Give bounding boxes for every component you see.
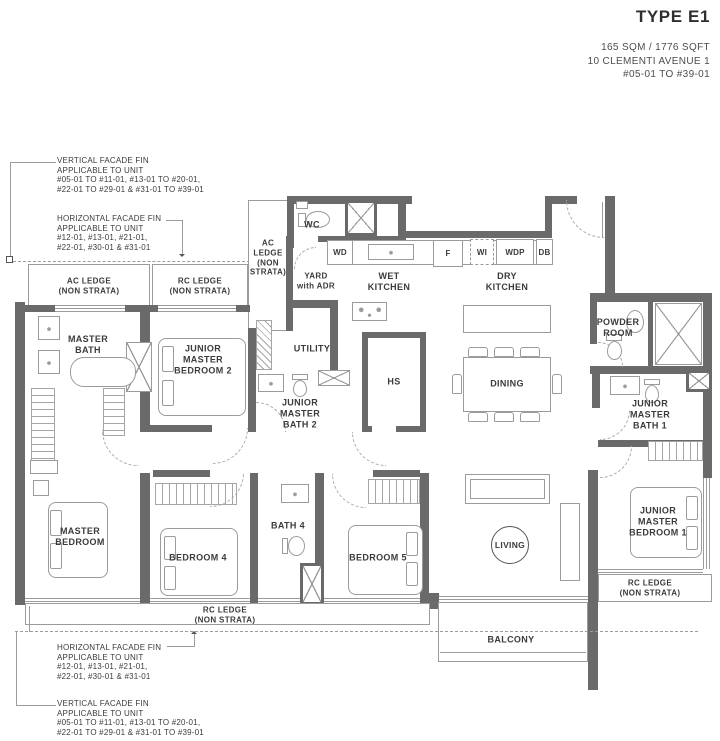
leader-line [182,220,183,254]
nightstand-icon [33,480,49,496]
vent-icon [318,370,350,386]
washer-dryer-box: WD [327,240,353,265]
toilet-icon [288,536,305,556]
label-junior-master-bath-2: JUNIOR MASTER BATH 2 [280,398,320,431]
callout-horizontal-fin-top: HORIZONTAL FACADE FIN APPLICABLE TO UNIT… [57,214,161,252]
bathtub-icon [70,357,136,387]
entry-door-arc [566,200,604,238]
label-bedroom-5: BEDROOM 5 [349,553,407,564]
pillow-icon [164,566,176,590]
label-master-bath: MASTER BATH [68,334,108,356]
wall [403,231,550,238]
wall [605,196,615,302]
label-junior-master-bedroom-1: JUNIOR MASTER BEDROOM 1 [629,506,687,539]
door-arc [600,410,630,440]
leader-line [194,634,195,647]
louvre-door-icon [256,320,272,370]
label-rc-ledge-right: RC LEDGE (NON STRATA) [620,578,681,598]
chair-icon [468,347,488,357]
sink-icon [281,484,309,503]
wdp-box: WDP [496,239,534,265]
wall [590,293,712,302]
chair-icon [452,374,462,394]
pillow-icon [686,496,698,520]
wardrobe-icon [103,388,125,436]
fridge-box: F [433,240,463,267]
window [158,305,236,312]
pillow-icon [406,532,418,556]
sink-icon [258,374,284,392]
toilet-icon [607,341,622,360]
label-ac-ledge-left: AC LEDGE (NON STRATA) [59,276,120,296]
sink-icon [610,376,640,395]
label-rc-ledge-left: RC LEDGE (NON STRATA) [170,276,231,296]
label-dry-kitchen: DRY KITCHEN [486,271,528,293]
balcony [438,602,588,662]
chair-icon [520,347,540,357]
label-yard: YARD with ADR [297,271,335,291]
label-bath-4: BATH 4 [271,521,305,532]
shaft [300,563,324,605]
callout-horizontal-fin-bottom: HORIZONTAL FACADE FIN APPLICABLE TO UNIT… [57,643,161,681]
label-bedroom-4: BEDROOM 4 [169,553,227,564]
wardrobe-icon [368,479,420,504]
label-dining: DINING [490,379,524,390]
sink-icon [38,350,60,374]
label-junior-master-bedroom-2: JUNIOR MASTER BEDROOM 2 [174,344,232,377]
callout-vertical-fin-bottom: VERTICAL FACADE FIN APPLICABLE TO UNIT #… [57,699,204,737]
unit-stack: #05-01 TO #39-01 [588,68,710,82]
header: TYPE E1 [636,7,710,27]
label-rc-ledge-bottom: RC LEDGE (NON STRATA) [195,605,256,625]
shaft [686,370,712,392]
leader-line [16,632,17,706]
wall [250,473,258,605]
chair-icon [494,347,514,357]
label-living: LIVING [491,526,529,564]
wi-box: WI [470,239,494,265]
window [703,478,710,569]
leader-line [10,162,11,257]
sink-icon [38,316,60,340]
table-icon [30,460,58,474]
cooktop-icon [352,302,387,321]
unit-address: 10 CLEMENTI AVENUE 1 [588,55,710,69]
wall [373,470,420,477]
door-arc [102,430,138,466]
label-wet-kitchen: WET KITCHEN [368,271,410,293]
door-arc [600,446,632,478]
wall [648,302,653,368]
pillow-icon [162,380,174,406]
door-arc [212,428,248,464]
leader-square [6,256,13,263]
door-arc [332,474,366,508]
wall [286,236,293,331]
page-title: TYPE E1 [636,7,710,27]
db-box: DB [536,239,553,265]
lift-shaft [655,303,702,365]
wall [588,470,598,690]
facade-fin-dashed-line [15,631,698,632]
balcony-line [440,652,586,653]
cistern-icon [296,201,308,209]
chair-icon [494,412,514,422]
pillow-icon [686,526,698,550]
door-arc [210,473,244,507]
wall [15,302,25,605]
wardrobe-icon [648,441,703,461]
window [55,305,125,312]
pillow-icon [406,562,418,586]
label-master-bedroom: MASTER BEDROOM [55,526,104,548]
pillow-icon [162,346,174,372]
wall [286,300,333,308]
chair-icon [520,412,540,422]
chair-icon [552,374,562,394]
floor-plan: TYPE E1 165 SQM / 1776 SQFT 10 CLEMENTI … [0,0,720,741]
label-utility: UTILITY [294,344,330,355]
callout-vertical-fin-top: VERTICAL FACADE FIN APPLICABLE TO UNIT #… [57,156,204,194]
facade-fin-dashed-line [13,261,250,262]
label-junior-master-bath-1: JUNIOR MASTER BATH 1 [630,399,670,432]
wall [153,470,210,477]
door-arc [294,247,316,269]
label-wc: WC [304,220,320,231]
door-leaf [602,202,603,238]
label-hs: HS [387,377,400,388]
shaft [345,200,377,236]
tv-console-icon [560,503,580,581]
leader-arrow-icon [191,628,197,634]
leader-line [10,162,56,163]
label-ac-ledge-strip: AC LEDGE (NON STRATA) [250,239,286,278]
wall [330,300,338,372]
unit-area: 165 SQM / 1776 SQFT [588,41,710,55]
unit-info: 165 SQM / 1776 SQFT 10 CLEMENTI AVENUE 1… [588,41,710,82]
leader-line [16,705,56,706]
wall [148,425,212,432]
kitchen-island [463,305,551,333]
leader-line [166,220,183,221]
chair-icon [468,412,488,422]
toilet-icon [293,380,307,397]
leader-line [167,646,195,647]
label-balcony: BALCONY [488,635,535,646]
door-arc [352,432,386,466]
sofa-icon [470,479,545,499]
wall [140,473,150,605]
label-powder-room: POWDER ROOM [597,317,640,339]
wall [592,366,600,408]
wall [248,328,256,432]
sink-icon [368,244,414,260]
leader-line [29,606,30,632]
leader-arrow-icon [179,254,185,260]
wall [315,473,324,568]
